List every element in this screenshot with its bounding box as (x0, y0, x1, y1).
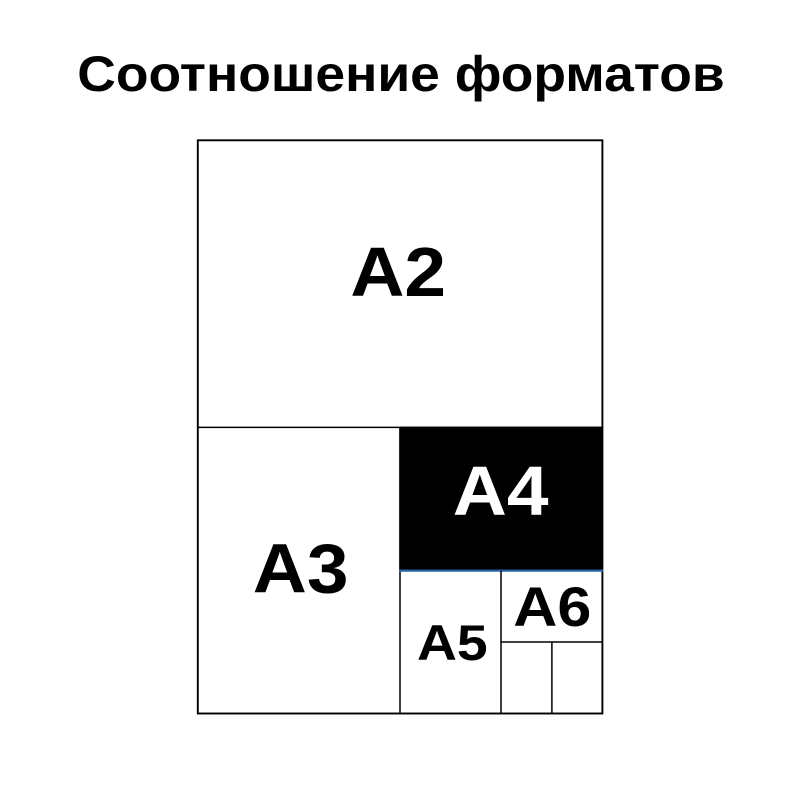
svg-text:A6: A6 (513, 576, 591, 638)
svg-text:Соотношение форматов: Соотношение форматов (77, 46, 724, 102)
svg-text:A3: A3 (253, 530, 349, 608)
svg-text:A2: A2 (350, 233, 446, 311)
svg-text:A5: A5 (417, 615, 488, 671)
svg-text:A4: A4 (453, 452, 549, 530)
